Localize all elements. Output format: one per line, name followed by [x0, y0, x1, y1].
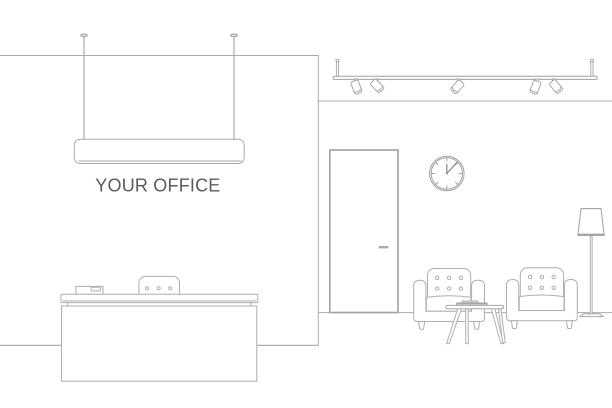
svg-text:YOUR OFFICE: YOUR OFFICE: [95, 176, 220, 196]
